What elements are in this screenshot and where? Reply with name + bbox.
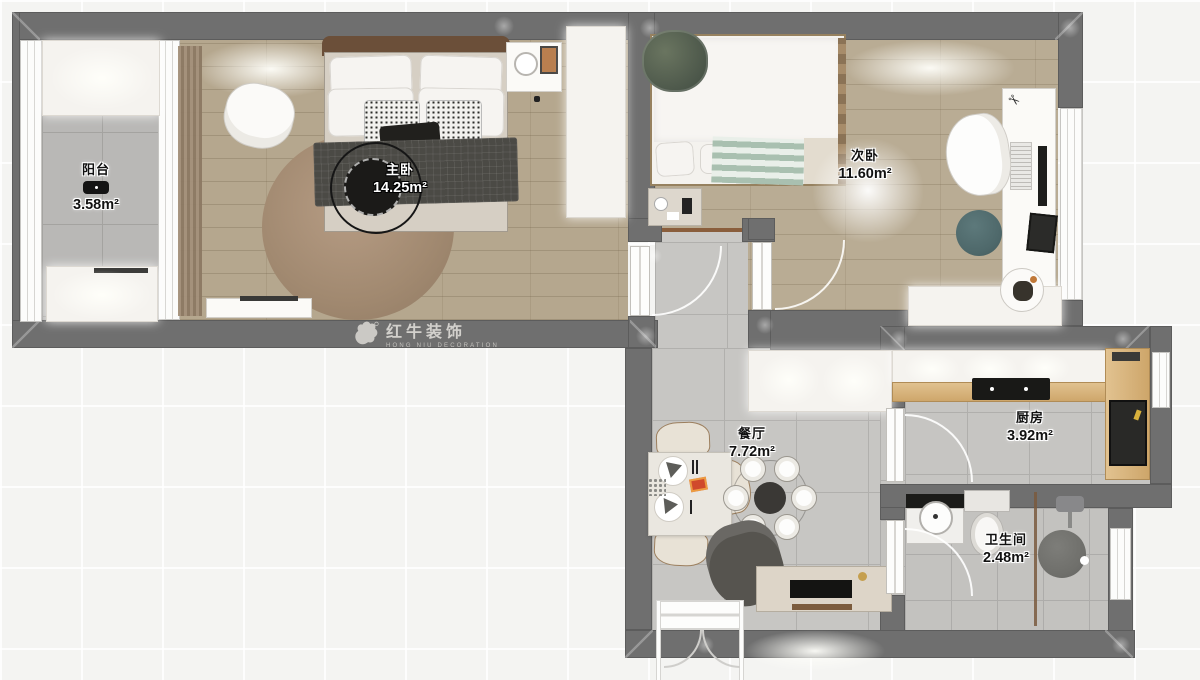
wall-kitchen-top [880, 326, 1150, 350]
low-cabinet [206, 298, 312, 318]
toilet-tank [964, 490, 1010, 512]
room-area: 3.92m² [970, 427, 1090, 446]
room-label-bathroom: 卫生间 2.48m² [946, 532, 1066, 568]
window [1152, 352, 1170, 408]
ceiling-light [904, 352, 960, 386]
ceiling-light [845, 40, 1015, 96]
decor-item [858, 572, 867, 581]
position-marker [83, 181, 109, 194]
corner-highlight [890, 330, 908, 348]
potted-plant [642, 30, 708, 92]
monitor [1038, 146, 1047, 206]
flowers [648, 478, 666, 496]
corner-highlight [636, 326, 656, 346]
room-area: 2.48m² [946, 549, 1066, 568]
faucet [933, 514, 938, 519]
window [158, 40, 180, 320]
watermark-brand: 红牛装饰 [386, 318, 499, 342]
kitchen-door [886, 408, 904, 482]
cooktop [972, 378, 1050, 400]
cooktop-burner [1024, 387, 1028, 391]
ceiling-light [758, 354, 820, 406]
ceiling-light [50, 46, 154, 110]
corner-highlight [1114, 330, 1132, 348]
entry-door-jamb [656, 600, 661, 680]
ceiling-light [822, 354, 886, 408]
wall-corner-seam [625, 630, 653, 658]
room-name: 主卧 [340, 162, 460, 179]
small-speaker [534, 96, 540, 102]
master-bedroom-door [630, 246, 650, 316]
wall-left [12, 12, 20, 348]
chandelier-bulb [723, 485, 749, 511]
hall-threshold [662, 228, 742, 242]
bathroom-door [886, 520, 904, 594]
watermark-subtitle: HONG NIU DECORATION [386, 343, 499, 349]
wall-bottom-topbar [12, 320, 658, 348]
room-label-dining: 餐厅 7.72m² [692, 426, 812, 462]
red-packet [689, 477, 708, 493]
green-striped-throw [711, 136, 805, 185]
photo-frame [540, 46, 558, 74]
floorplan-canvas: ✂ [0, 0, 1200, 680]
wall-hall-right-upper [748, 218, 775, 240]
laptop [1026, 213, 1058, 254]
entry-door-swing-arc [664, 630, 702, 668]
bed-pillow [655, 141, 695, 178]
window [1060, 108, 1083, 300]
shower-head-icon [1056, 496, 1084, 512]
bedside-table [648, 188, 702, 226]
room-name: 阳台 [46, 162, 146, 179]
tv [790, 580, 852, 598]
dining-table [648, 452, 732, 536]
corner-highlight [1060, 18, 1080, 38]
room-area: 3.58m² [46, 196, 146, 215]
room-name: 卫生间 [946, 532, 1066, 549]
range-hood [1112, 352, 1140, 361]
wall-corner-seam [12, 12, 40, 40]
doormat-glow [745, 630, 885, 672]
wall-corner-seam [12, 320, 40, 348]
card [667, 212, 679, 220]
bag [1013, 281, 1033, 301]
entry-door-frame [656, 600, 744, 630]
table-lamp [654, 197, 668, 211]
room-name: 次卧 [805, 148, 925, 165]
cutlery [690, 500, 692, 514]
room-area: 11.60m² [805, 165, 925, 184]
cutlery [696, 460, 698, 474]
watermark: 红牛装饰 HONG NIU DECORATION [352, 316, 532, 350]
wall-top [12, 12, 1083, 40]
room-label-master-bedroom: 主卧 14.25m² [340, 162, 460, 198]
room-label-kitchen: 厨房 3.92m² [970, 410, 1090, 446]
room-name: 餐厅 [692, 426, 812, 443]
corner-highlight [756, 316, 774, 334]
chandelier-bulb [774, 514, 800, 540]
keyboard [1010, 142, 1032, 190]
refrigerator [1109, 400, 1147, 466]
fridge-handle [1133, 409, 1141, 420]
room-name: 厨房 [970, 410, 1090, 427]
vanity-table [506, 42, 562, 92]
room-label-balcony: 阳台 3.58m² [46, 162, 146, 215]
bull-logo-icon [352, 319, 380, 347]
desk [1002, 88, 1056, 292]
corner-highlight [494, 16, 514, 36]
mirror [514, 52, 538, 76]
floor-pouf [956, 210, 1002, 256]
side-table [1000, 268, 1044, 312]
second-bedroom-door [752, 242, 772, 310]
sideboard [756, 566, 892, 612]
small-item [1030, 276, 1037, 283]
shelf [792, 604, 852, 610]
window [1110, 528, 1131, 600]
room-area: 7.72m² [692, 443, 812, 462]
chandelier-bulb [791, 485, 817, 511]
room-area: 14.25m² [340, 179, 460, 198]
shower-pipe [1068, 512, 1072, 528]
wardrobe [566, 26, 626, 218]
room-label-second-bedroom: 次卧 11.60m² [805, 148, 925, 184]
entry-door-swing-arc [702, 630, 740, 668]
chandelier-center [754, 482, 786, 514]
shampoo-bottle [1080, 556, 1089, 565]
corner-highlight [1112, 636, 1130, 654]
window [20, 40, 42, 322]
cutlery [692, 460, 694, 474]
curtain [178, 46, 202, 316]
tv-panel [240, 296, 298, 301]
cooktop-burner [990, 387, 994, 391]
phone [682, 198, 692, 214]
ceiling-light [52, 270, 152, 320]
